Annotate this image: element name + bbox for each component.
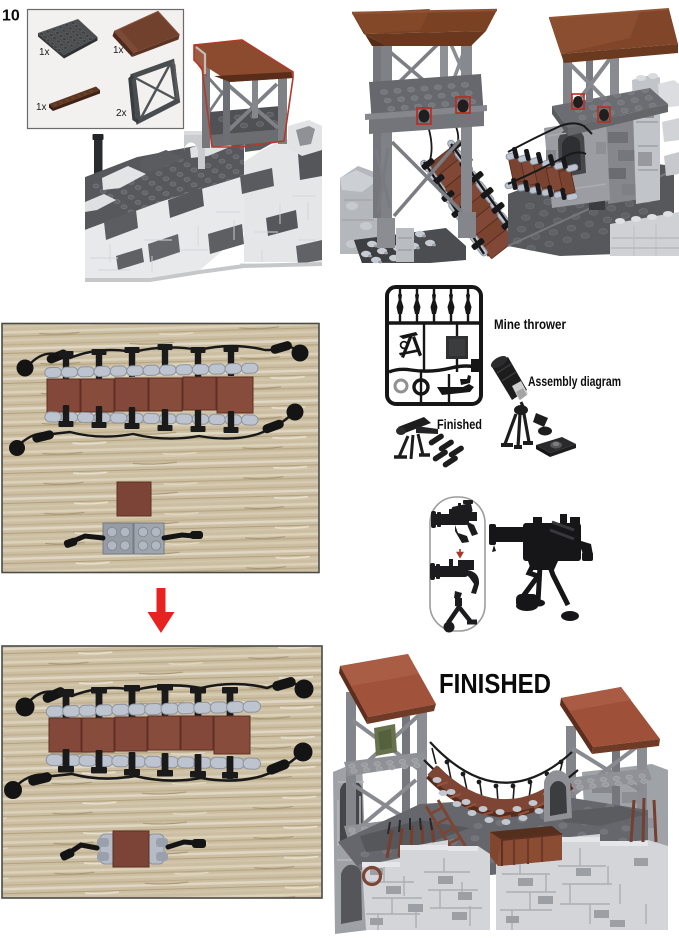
svg-text:2x: 2x — [116, 108, 127, 119]
svg-text:1x: 1x — [36, 102, 47, 113]
svg-text:FINISHED: FINISHED — [439, 668, 551, 699]
svg-text:10: 10 — [2, 8, 20, 25]
svg-text:Assembly diagram: Assembly diagram — [528, 373, 621, 389]
svg-text:Finished: Finished — [437, 416, 482, 432]
svg-text:Mine thrower: Mine thrower — [494, 316, 566, 332]
svg-text:1x: 1x — [113, 45, 124, 56]
svg-text:1x: 1x — [39, 47, 50, 58]
